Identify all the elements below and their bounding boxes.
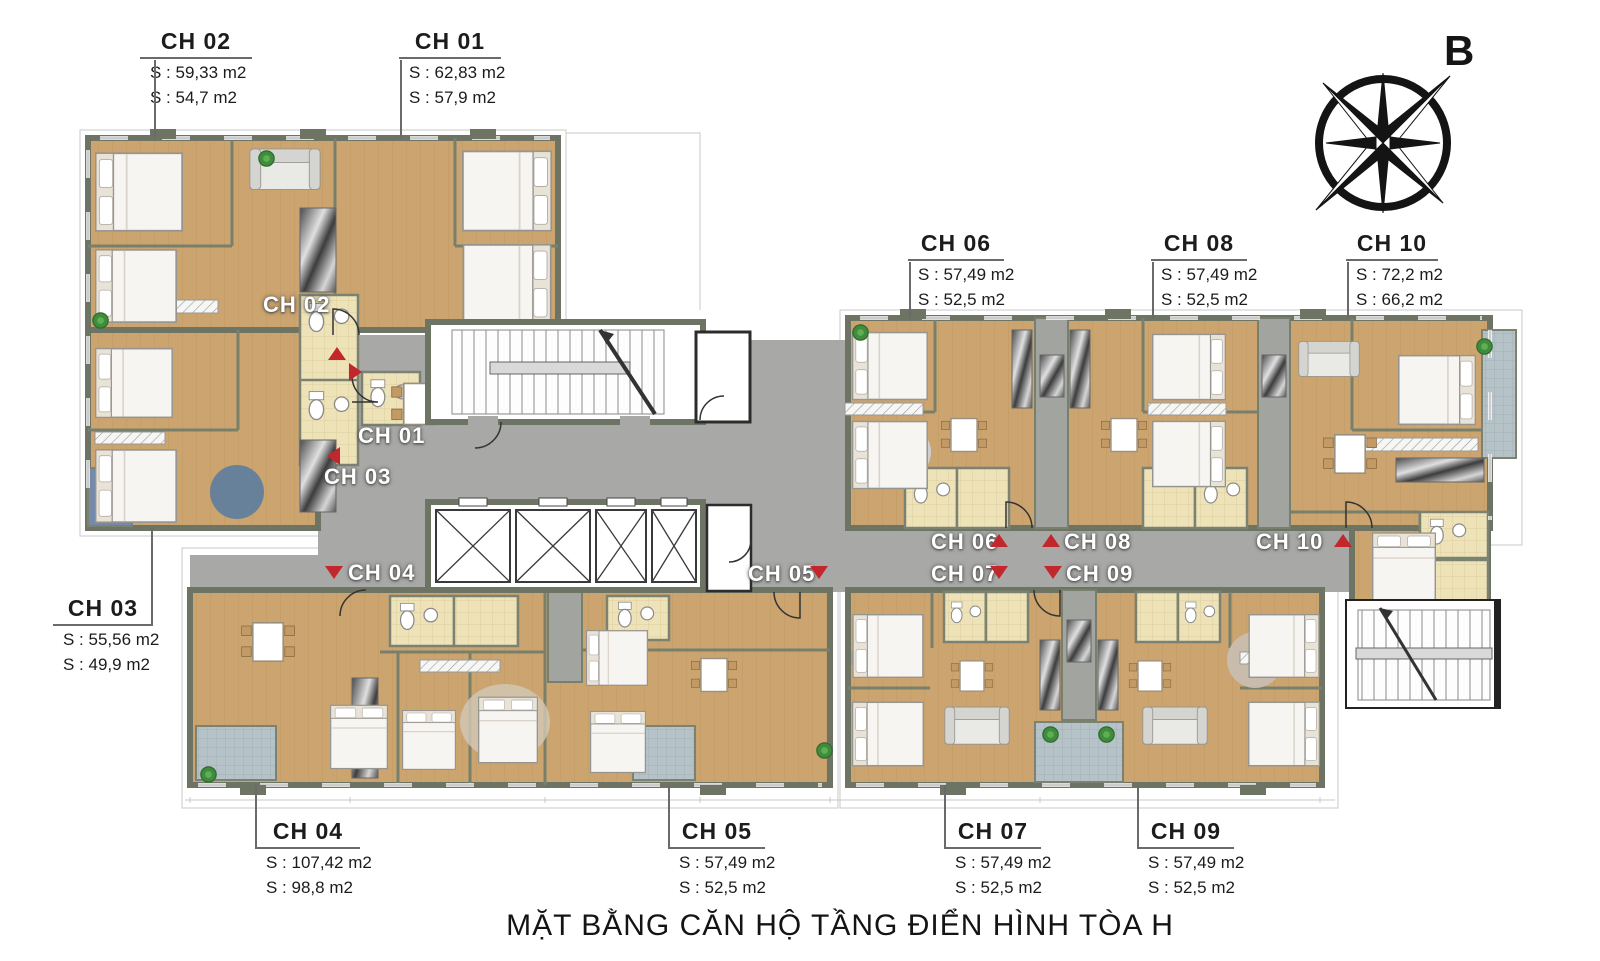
stair-core xyxy=(428,322,703,425)
callout-ch06-area-net: S : 52,5 m2 xyxy=(908,286,1004,311)
callout-ch10-leader xyxy=(1347,262,1349,318)
callout-ch01-leader xyxy=(400,60,402,138)
callout-ch09-area-gross: S : 57,49 m2 xyxy=(1138,849,1234,874)
callout-ch01-label: CH 01 xyxy=(399,28,501,59)
entrance-arrow-ch04-icon xyxy=(325,566,343,579)
entrance-arrow-ch03-icon xyxy=(327,447,340,465)
callout-ch07-area-net: S : 52,5 m2 xyxy=(945,874,1041,899)
entrance-arrow-ch07-icon xyxy=(990,566,1008,579)
marker-ch04: CH 04 xyxy=(348,561,415,585)
callout-ch03: CH 03 S : 55,56 m2 S : 49,9 m2 xyxy=(53,595,153,676)
right-stairwell xyxy=(1346,600,1500,708)
callout-ch08-area-net: S : 52,5 m2 xyxy=(1151,286,1247,311)
callout-ch08-area-gross: S : 57,49 m2 xyxy=(1151,261,1247,286)
floor-plan-page: CH 02 S : 59,33 m2 S : 54,7 m2 CH 01 S :… xyxy=(0,0,1600,961)
entrance-arrow-ch05-icon xyxy=(810,566,828,579)
callout-ch07-leader xyxy=(944,785,946,849)
callout-ch09-leader xyxy=(1137,785,1139,849)
callout-ch04-leader xyxy=(255,785,257,849)
callout-ch08-label: CH 08 xyxy=(1151,230,1247,261)
callout-ch08-leader xyxy=(1152,262,1154,318)
marker-ch07: CH 07 xyxy=(931,562,998,586)
callout-ch02-leader xyxy=(154,60,156,138)
callout-ch04-area-gross: S : 107,42 m2 xyxy=(256,849,360,874)
marker-ch05: CH 05 xyxy=(748,562,815,586)
callout-ch03-area-gross: S : 55,56 m2 xyxy=(53,626,153,651)
entrance-arrow-ch02-icon xyxy=(328,347,346,360)
marker-ch03: CH 03 xyxy=(324,465,391,489)
marker-ch08: CH 08 xyxy=(1064,530,1131,554)
drawing-title: MẶT BẰNG CĂN HỘ TẦNG ĐIỂN HÌNH TÒA H xyxy=(240,906,1440,946)
callout-ch10-label: CH 10 xyxy=(1346,230,1438,261)
callout-ch06: CH 06 S : 57,49 m2 S : 52,5 m2 xyxy=(908,230,1004,311)
entrance-arrow-ch08-icon xyxy=(1042,534,1060,547)
callout-ch10-area-gross: S : 72,2 m2 xyxy=(1346,261,1438,286)
marker-ch02: CH 02 xyxy=(263,293,330,317)
callout-ch06-area-gross: S : 57,49 m2 xyxy=(908,261,1004,286)
callout-ch05-label: CH 05 xyxy=(669,818,765,849)
callout-ch07-area-gross: S : 57,49 m2 xyxy=(945,849,1041,874)
marker-ch01: CH 01 xyxy=(358,424,425,448)
callout-ch10: CH 10 S : 72,2 m2 S : 66,2 m2 xyxy=(1346,230,1438,311)
entrance-arrow-ch10-icon xyxy=(1334,534,1352,547)
callout-ch03-label: CH 03 xyxy=(53,595,153,626)
callout-ch08: CH 08 S : 57,49 m2 S : 52,5 m2 xyxy=(1151,230,1247,311)
callout-ch03-leader xyxy=(151,528,153,626)
callout-ch07: CH 07 S : 57,49 m2 S : 52,5 m2 xyxy=(945,818,1041,899)
callout-ch02: CH 02 S : 59,33 m2 S : 54,7 m2 xyxy=(140,28,252,109)
marker-ch06: CH 06 xyxy=(931,530,998,554)
marker-ch09: CH 09 xyxy=(1066,562,1133,586)
callout-ch09: CH 09 S : 57,49 m2 S : 52,5 m2 xyxy=(1138,818,1234,899)
callout-ch04: CH 04 S : 107,42 m2 S : 98,8 m2 xyxy=(256,818,360,899)
callout-ch01: CH 01 S : 62,83 m2 S : 57,9 m2 xyxy=(399,28,501,109)
entrance-arrow-ch01-icon xyxy=(349,363,362,381)
callout-ch04-area-net: S : 98,8 m2 xyxy=(256,874,360,899)
callout-ch01-area-gross: S : 62,83 m2 xyxy=(399,59,501,84)
callout-ch07-label: CH 07 xyxy=(945,818,1041,849)
callout-ch10-area-net: S : 66,2 m2 xyxy=(1346,286,1438,311)
entrance-arrow-ch09-icon xyxy=(1044,566,1062,579)
callout-ch02-area-gross: S : 59,33 m2 xyxy=(140,59,252,84)
callout-ch02-area-net: S : 54,7 m2 xyxy=(140,84,252,109)
callout-ch09-label: CH 09 xyxy=(1138,818,1234,849)
callout-ch05-leader xyxy=(668,785,670,849)
marker-ch10: CH 10 xyxy=(1256,530,1323,554)
callout-ch06-leader xyxy=(909,262,911,318)
callout-ch05: CH 05 S : 57,49 m2 S : 52,5 m2 xyxy=(669,818,765,899)
callout-ch03-area-net: S : 49,9 m2 xyxy=(53,651,153,676)
callout-ch06-label: CH 06 xyxy=(908,230,1004,261)
callout-ch05-area-net: S : 52,5 m2 xyxy=(669,874,765,899)
entrance-arrow-ch06-icon xyxy=(990,534,1008,547)
callout-ch09-area-net: S : 52,5 m2 xyxy=(1138,874,1234,899)
callout-ch01-area-net: S : 57,9 m2 xyxy=(399,84,501,109)
callout-ch04-label: CH 04 xyxy=(256,818,360,849)
compass-north-label: B xyxy=(1444,28,1474,74)
callout-ch05-area-gross: S : 57,49 m2 xyxy=(669,849,765,874)
elevator-bank xyxy=(428,498,703,590)
callout-ch02-label: CH 02 xyxy=(140,28,252,59)
